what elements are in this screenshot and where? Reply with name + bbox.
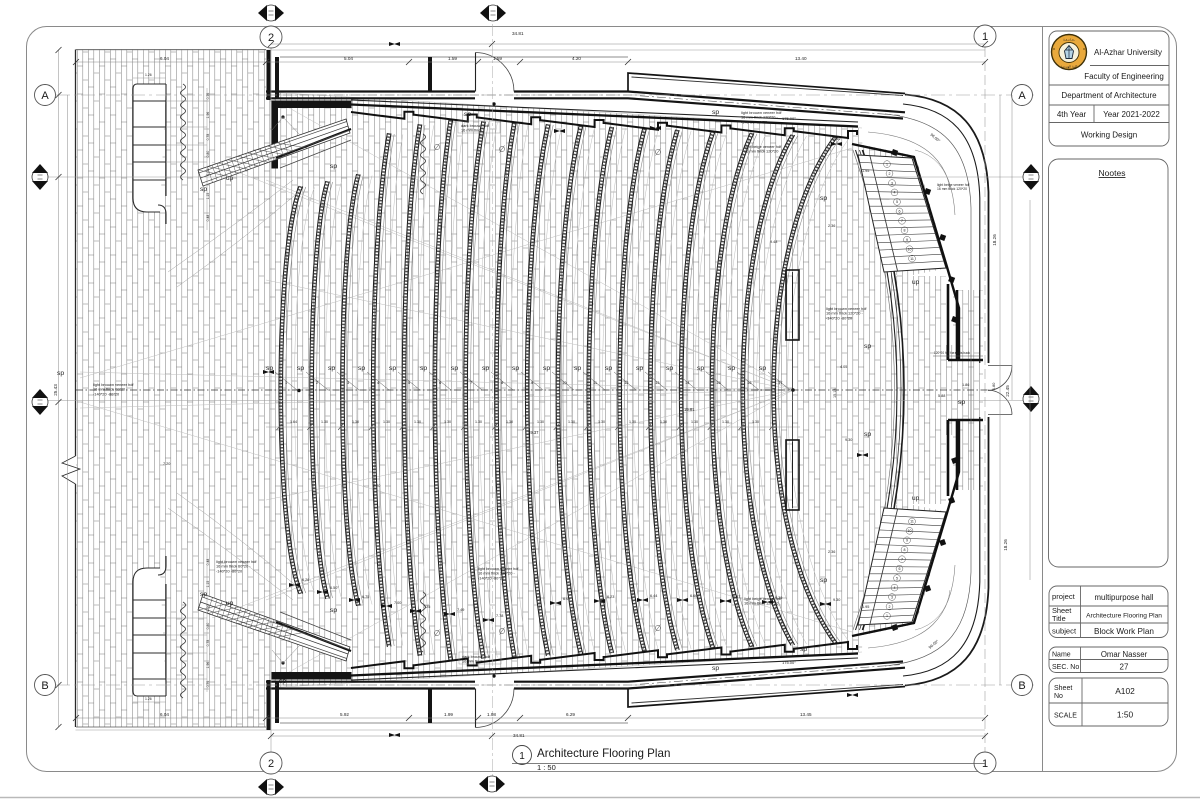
- svg-text:1.99: 1.99: [444, 712, 453, 717]
- svg-text:34.81: 34.81: [513, 733, 525, 738]
- svg-text:A: A: [41, 90, 49, 102]
- svg-text:Name: Name: [1052, 652, 1071, 659]
- svg-text:sp: sp: [279, 101, 286, 108]
- svg-text:Architecture Flooring Plan: Architecture Flooring Plan: [1086, 613, 1162, 620]
- svg-text:16 mm thick: 16 mm thick: [461, 128, 482, 133]
- svg-text:B: B: [1018, 680, 1025, 692]
- svg-text:sp: sp: [820, 577, 827, 584]
- svg-text:13.45: 13.45: [800, 712, 812, 717]
- svg-text:4.05: 4.05: [840, 365, 847, 369]
- svg-text:5.92: 5.92: [340, 712, 349, 717]
- svg-text:Title: Title: [1052, 614, 1066, 623]
- svg-text:A: A: [1018, 90, 1026, 102]
- svg-text:Omar Nasser: Omar Nasser: [1101, 650, 1148, 659]
- svg-text:1.86: 1.86: [962, 383, 969, 387]
- svg-text:7.20: 7.20: [163, 462, 170, 466]
- svg-text:1.30: 1.30: [537, 420, 544, 424]
- svg-text:18.26: 18.26: [1003, 539, 1008, 551]
- svg-text:1: 1: [886, 162, 888, 166]
- svg-text:sp: sp: [57, 370, 64, 377]
- svg-text:sp: sp: [864, 343, 871, 350]
- svg-text:19.37: 19.37: [528, 430, 539, 435]
- svg-text:11: 11: [910, 520, 914, 524]
- svg-text:1 : 50: 1 : 50: [537, 763, 556, 772]
- svg-text:6.44: 6.44: [650, 594, 657, 598]
- svg-text:27: 27: [1120, 663, 1129, 672]
- svg-text:1.30: 1.30: [321, 420, 328, 424]
- svg-text:1.30: 1.30: [383, 420, 390, 424]
- svg-text:Working Design: Working Design: [1081, 131, 1137, 140]
- svg-text:sp: sp: [451, 365, 458, 372]
- svg-text:1.95: 1.95: [862, 169, 869, 173]
- svg-text:up: up: [912, 495, 920, 502]
- svg-text:16 mm thick 120*20: 16 mm thick 120*20: [744, 601, 779, 606]
- svg-text:sp: sp: [574, 365, 581, 372]
- svg-text:multipurpose hall: multipurpose hall: [1095, 593, 1154, 602]
- svg-text:sp: sp: [512, 365, 519, 372]
- svg-text:1.30: 1.30: [352, 420, 359, 424]
- svg-text:1.59: 1.59: [448, 56, 457, 61]
- svg-text:1.26: 1.26: [145, 73, 152, 77]
- svg-text:1.26: 1.26: [145, 697, 152, 701]
- svg-text:sp: sp: [759, 365, 766, 372]
- svg-text:3: 3: [891, 595, 893, 599]
- svg-text:1.59: 1.59: [493, 56, 502, 61]
- svg-text:1.30: 1.30: [568, 420, 575, 424]
- svg-text:7.20: 7.20: [373, 484, 380, 488]
- svg-text:22.45: 22.45: [1005, 385, 1010, 397]
- svg-text:10: 10: [908, 248, 912, 252]
- svg-text:6.50°: 6.50°: [330, 586, 339, 590]
- svg-text:2: 2: [889, 605, 891, 609]
- svg-text:25.43: 25.43: [53, 384, 58, 396]
- svg-text:sp: sp: [464, 111, 471, 118]
- svg-text:175.00°: 175.00°: [782, 660, 796, 665]
- svg-text:17: 17: [778, 380, 783, 385]
- svg-text:4.20: 4.20: [572, 56, 581, 61]
- svg-text:8: 8: [904, 548, 906, 552]
- svg-text:3: 3: [891, 181, 893, 185]
- svg-text:9: 9: [906, 238, 908, 242]
- svg-text:7: 7: [901, 558, 903, 562]
- svg-text:Sheet: Sheet: [1054, 685, 1072, 692]
- svg-text:0.80: 0.80: [206, 623, 210, 630]
- svg-text:1: 1: [519, 751, 525, 762]
- svg-text:-140*20 -80*20: -140*20 -80*20: [93, 391, 120, 396]
- svg-text:sp: sp: [712, 665, 719, 672]
- svg-text:sp: sp: [389, 365, 396, 372]
- svg-text:-140*20 -80*20: -140*20 -80*20: [478, 575, 505, 580]
- svg-text:2.36: 2.36: [828, 224, 835, 228]
- svg-text:16 mm thick 120*20: 16 mm thick 120*20: [744, 149, 779, 154]
- svg-text:sp: sp: [636, 365, 643, 372]
- svg-text:7.78: 7.78: [496, 614, 503, 618]
- svg-text:9.30: 9.30: [833, 598, 840, 602]
- svg-text:Department of Architecture: Department of Architecture: [1061, 91, 1157, 100]
- svg-text:1.30: 1.30: [752, 420, 759, 424]
- svg-text:9.39: 9.39: [775, 596, 782, 600]
- svg-text:-140*20 -80*20: -140*20 -80*20: [826, 315, 853, 320]
- svg-text:sp: sp: [330, 607, 337, 614]
- svg-text:project: project: [1052, 592, 1076, 601]
- svg-text:SCALE: SCALE: [1054, 713, 1077, 720]
- svg-text:9.30: 9.30: [845, 438, 852, 442]
- svg-text:up: up: [226, 600, 234, 607]
- svg-text:1.30: 1.30: [444, 420, 451, 424]
- svg-text:Year 2021-2022: Year 2021-2022: [1103, 110, 1160, 119]
- svg-text:1:50: 1:50: [1117, 710, 1134, 720]
- svg-text:6.29: 6.29: [566, 712, 575, 717]
- svg-text:1: 1: [886, 614, 888, 618]
- svg-text:-140*20 -80*20: -140*20 -80*20: [216, 568, 243, 573]
- svg-text:14: 14: [685, 380, 690, 385]
- svg-text:sp: sp: [200, 186, 207, 193]
- svg-text:sp: sp: [358, 365, 365, 372]
- svg-text:sp: sp: [279, 678, 286, 685]
- svg-text:SEC. No: SEC. No: [1052, 664, 1079, 671]
- svg-text:5.88: 5.88: [938, 394, 945, 398]
- svg-text:6.01: 6.01: [563, 597, 570, 601]
- svg-text:175.00°: 175.00°: [782, 116, 796, 121]
- svg-text:Block Work Plan: Block Work Plan: [1094, 627, 1154, 636]
- svg-text:sp: sp: [328, 365, 335, 372]
- svg-text:1.30: 1.30: [691, 420, 698, 424]
- svg-text:1.15: 1.15: [206, 193, 210, 200]
- svg-text:Al-Azhar University: Al-Azhar University: [1094, 48, 1162, 57]
- svg-text:1.30: 1.30: [414, 420, 421, 424]
- svg-text:7.00: 7.00: [394, 601, 401, 605]
- svg-text:6.66: 6.66: [690, 594, 697, 598]
- svg-text:1: 1: [982, 31, 988, 43]
- svg-text:16: 16: [747, 380, 752, 385]
- svg-text:1.80: 1.80: [992, 383, 996, 390]
- svg-text:6.26: 6.26: [302, 578, 309, 582]
- svg-text:4: 4: [894, 586, 896, 590]
- svg-text:1.30: 1.30: [660, 420, 667, 424]
- svg-text:كلية الهندسة: كلية الهندسة: [1061, 65, 1078, 69]
- svg-text:18.26: 18.26: [992, 234, 997, 246]
- svg-text:11: 11: [910, 257, 914, 261]
- svg-text:sp: sp: [330, 163, 337, 170]
- svg-text:6.75: 6.75: [362, 595, 369, 599]
- svg-text:10: 10: [562, 380, 567, 385]
- svg-text:sp: sp: [728, 365, 735, 372]
- svg-text:6.87: 6.87: [733, 595, 740, 599]
- svg-text:4: 4: [894, 191, 896, 195]
- svg-text:sp: sp: [297, 365, 304, 372]
- svg-text:1.30: 1.30: [475, 420, 482, 424]
- svg-text:13: 13: [655, 380, 660, 385]
- svg-text:1.96: 1.96: [206, 112, 210, 119]
- svg-text:1.95: 1.95: [862, 605, 869, 609]
- svg-text:13.40: 13.40: [795, 56, 807, 61]
- svg-text:6.04: 6.04: [160, 712, 169, 717]
- svg-text:0.78: 0.78: [206, 640, 210, 647]
- svg-text:7: 7: [901, 219, 903, 223]
- svg-text:16 mm thick 120*20: 16 mm thick 120*20: [937, 187, 967, 191]
- svg-text:subject: subject: [1052, 627, 1077, 636]
- svg-text:sp: sp: [605, 365, 612, 372]
- svg-text:15.81: 15.81: [684, 407, 695, 412]
- svg-text:15: 15: [716, 380, 721, 385]
- svg-text:sp: sp: [958, 399, 965, 406]
- svg-text:7.49: 7.49: [457, 608, 464, 612]
- svg-text:6: 6: [899, 567, 901, 571]
- svg-text:120*20 hdf for seats back: 120*20 hdf for seats back: [934, 351, 971, 355]
- svg-text:sp: sp: [482, 365, 489, 372]
- svg-text:sp: sp: [800, 646, 807, 653]
- svg-text:1.30: 1.30: [598, 420, 605, 424]
- svg-text:5.04: 5.04: [344, 56, 353, 61]
- svg-text:1.64: 1.64: [290, 420, 297, 424]
- svg-text:sp: sp: [697, 365, 704, 372]
- svg-text:sp: sp: [420, 365, 427, 372]
- svg-text:up: up: [226, 175, 234, 182]
- svg-text:sp: sp: [666, 365, 673, 372]
- svg-text:16 mm thick: 16 mm thick: [462, 659, 483, 664]
- svg-text:A102: A102: [1115, 686, 1135, 696]
- svg-text:34.81: 34.81: [512, 31, 524, 36]
- svg-text:2: 2: [268, 758, 274, 770]
- svg-text:9.30: 9.30: [833, 137, 840, 141]
- svg-text:0.76: 0.76: [206, 93, 210, 100]
- svg-text:sp: sp: [200, 591, 207, 598]
- svg-text:9: 9: [906, 539, 908, 543]
- svg-text:Nootes: Nootes: [1099, 168, 1126, 178]
- svg-text:0.48: 0.48: [206, 215, 210, 222]
- svg-text:2: 2: [889, 172, 891, 176]
- svg-text:sp: sp: [543, 365, 550, 372]
- svg-text:5: 5: [896, 200, 898, 204]
- svg-text:No: No: [1054, 693, 1063, 700]
- svg-text:0.80: 0.80: [206, 151, 210, 158]
- svg-text:Faculty of Engineering: Faculty of Engineering: [1084, 72, 1164, 81]
- svg-text:8: 8: [904, 229, 906, 233]
- svg-text:1.98: 1.98: [487, 712, 496, 717]
- svg-text:15.13: 15.13: [833, 388, 837, 398]
- svg-text:6.23: 6.23: [607, 595, 614, 599]
- svg-text:1.30: 1.30: [629, 420, 636, 424]
- svg-text:1.30: 1.30: [722, 420, 729, 424]
- svg-text:1.30: 1.30: [506, 420, 513, 424]
- svg-text:9.48: 9.48: [770, 240, 777, 244]
- svg-text:5: 5: [896, 576, 898, 580]
- svg-text:10: 10: [908, 529, 912, 533]
- svg-text:6.04: 6.04: [160, 56, 169, 61]
- svg-text:0.76: 0.76: [206, 681, 210, 688]
- svg-text:up: up: [912, 279, 920, 286]
- svg-text:0.48: 0.48: [206, 559, 210, 566]
- svg-text:sp: sp: [712, 109, 719, 116]
- svg-text:1.15: 1.15: [206, 581, 210, 588]
- svg-text:sp: sp: [864, 431, 871, 438]
- svg-text:B: B: [41, 680, 48, 692]
- svg-text:12: 12: [624, 380, 629, 385]
- svg-text:6: 6: [899, 210, 901, 214]
- svg-text:2.36: 2.36: [828, 550, 835, 554]
- svg-text:4th Year: 4th Year: [1057, 110, 1087, 119]
- svg-text:Architecture Flooring Plan: Architecture Flooring Plan: [537, 747, 670, 760]
- svg-text:sp: sp: [820, 195, 827, 202]
- svg-text:0.78: 0.78: [206, 134, 210, 141]
- svg-text:7.25: 7.25: [423, 605, 430, 609]
- svg-text:-140*20 -80*20: -140*20 -80*20: [741, 119, 768, 124]
- svg-text:ـجـامـعـة: ـجـامـعـة: [1063, 38, 1075, 42]
- svg-text:1.96: 1.96: [206, 662, 210, 669]
